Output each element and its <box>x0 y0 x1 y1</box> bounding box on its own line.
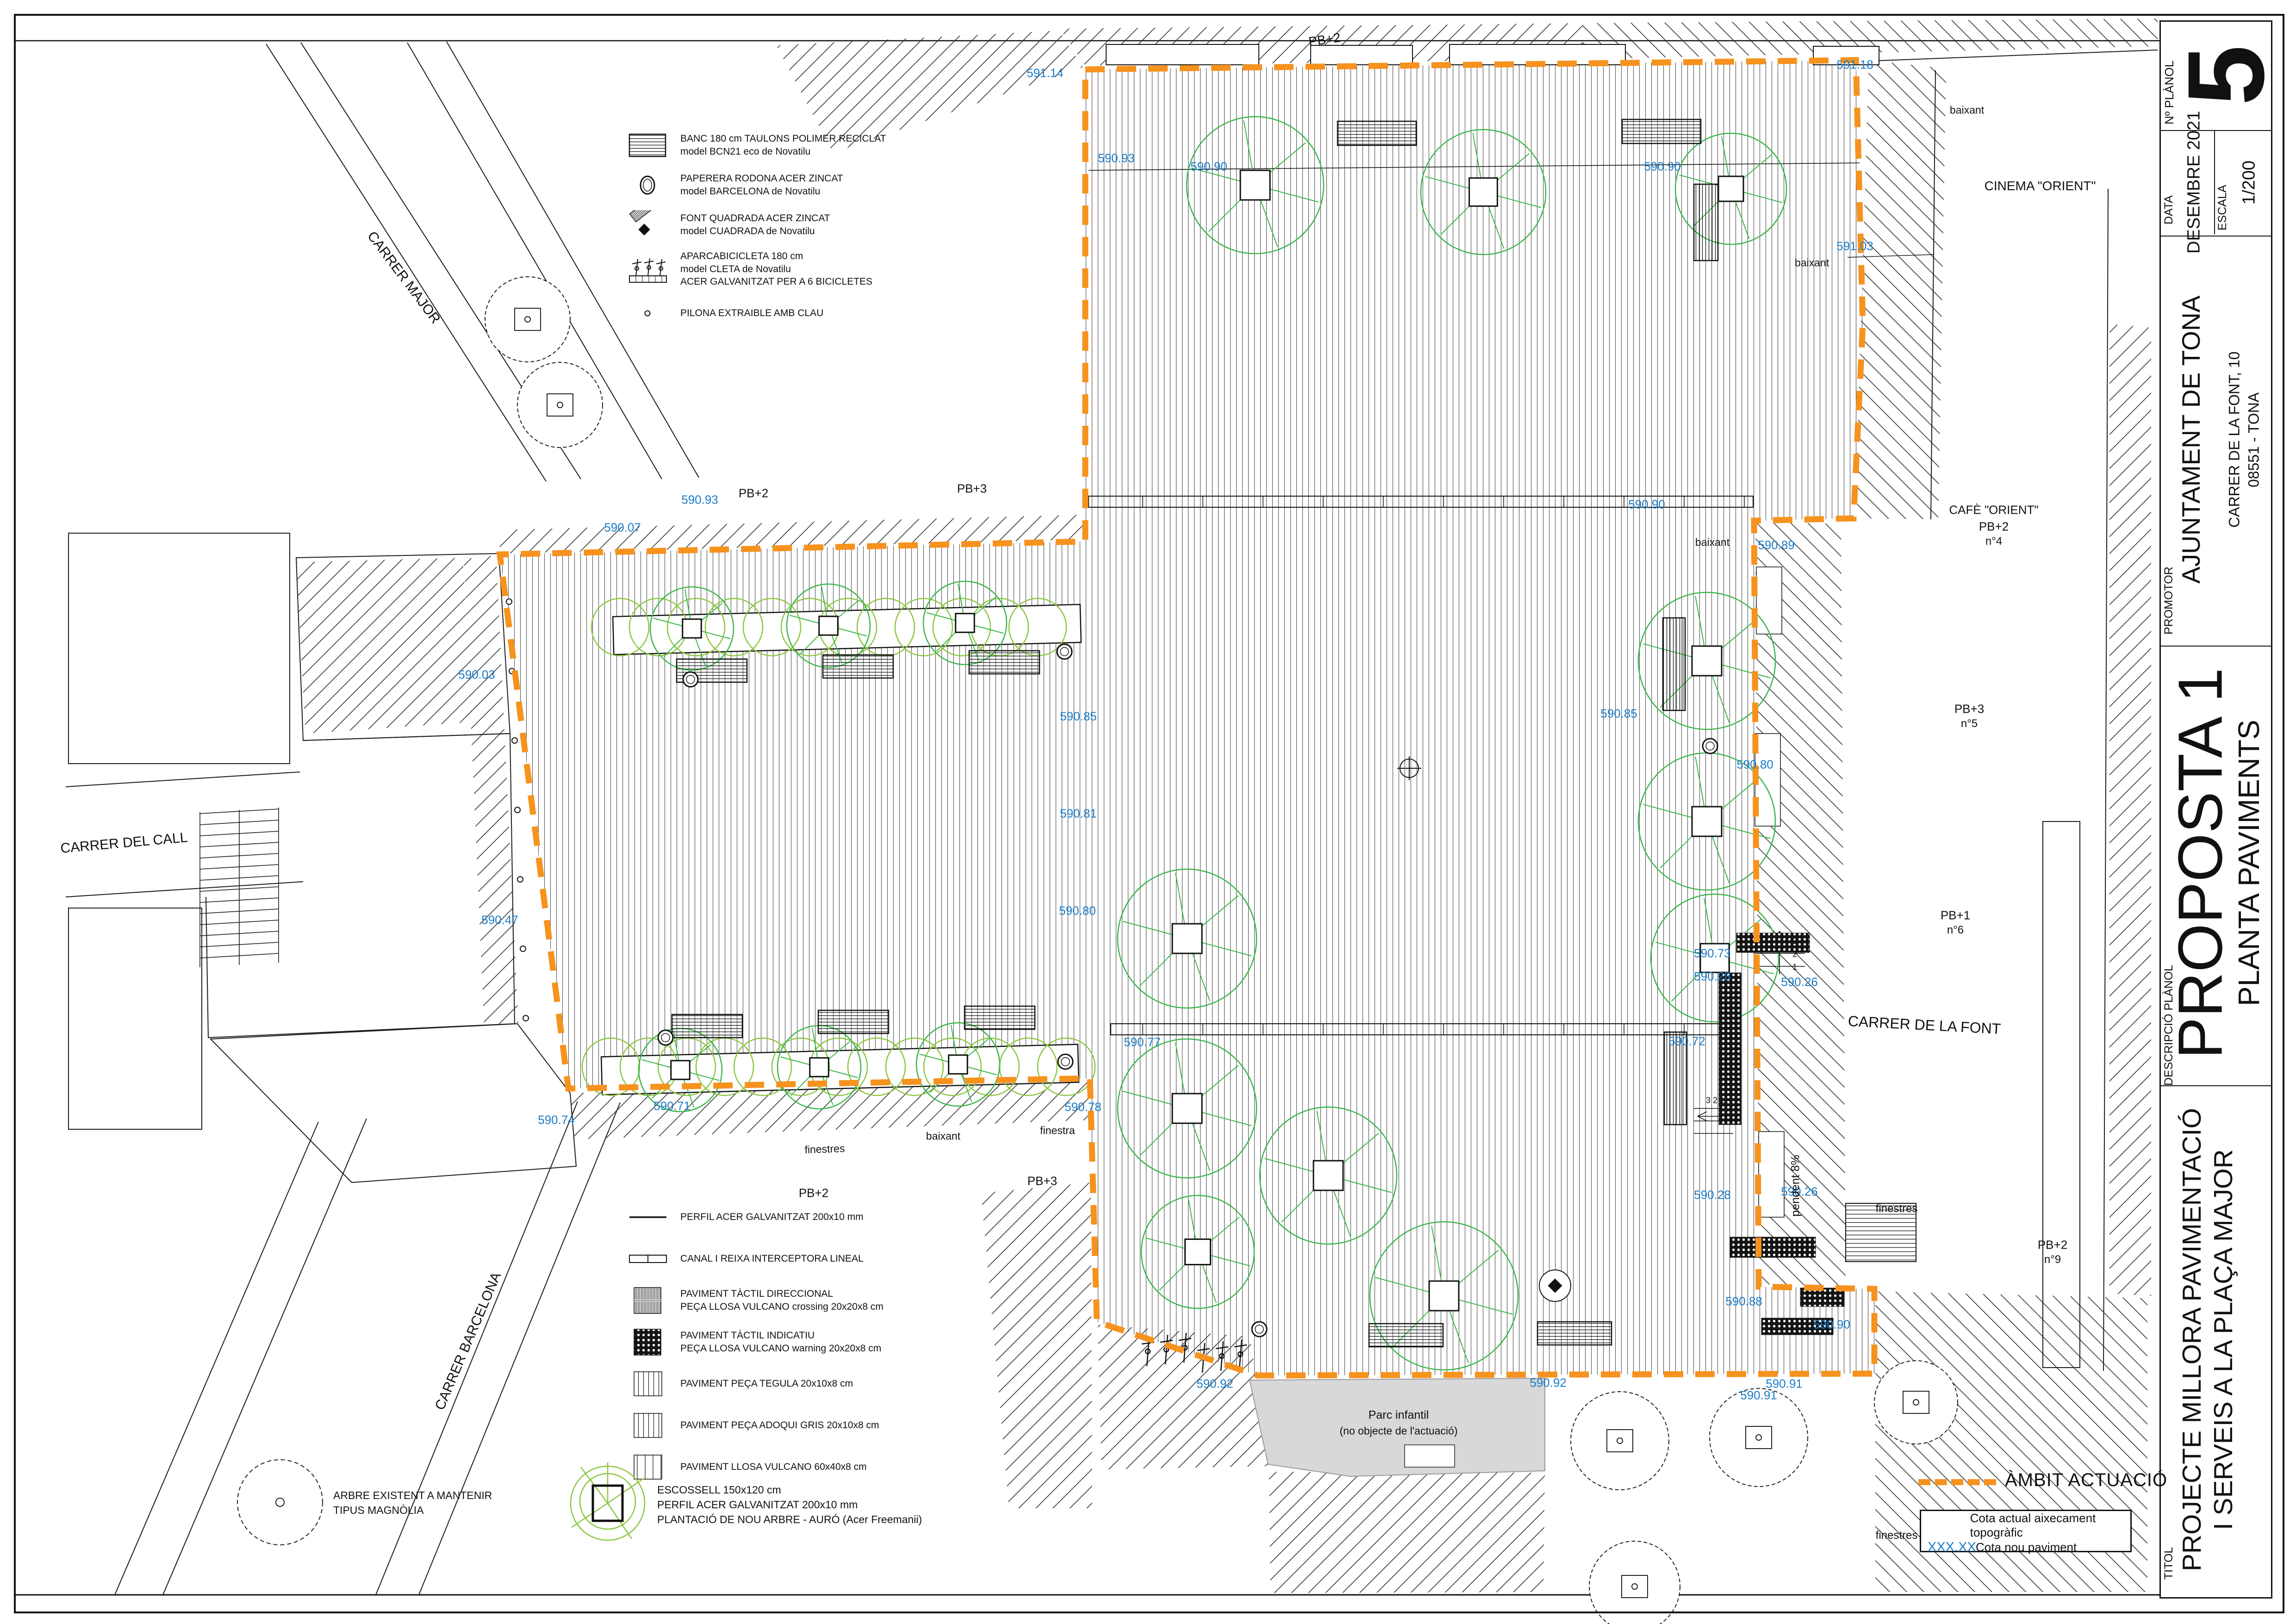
legend-arbre-existent-line1: ARBRE EXISTENT A MANTENIR <box>333 1489 492 1502</box>
fountain-icon <box>626 210 672 240</box>
adoqui-icon <box>626 1411 672 1440</box>
legend-paviments: PERFIL ACER GALVANITZAT 200x10 mmCANAL I… <box>626 1202 1042 1494</box>
legend-arbres: ARBRE EXISTENT A MANTENIR TIPUS MAGNÒLIA… <box>234 1453 1044 1560</box>
legend-row-text: BANC 180 cm TAULONS POLIMER RECICLATmode… <box>680 132 886 158</box>
cota-actual-row: Cota actual aixecament topogràfic <box>1921 1511 2130 1540</box>
legend-row-text: PAVIMENT PEÇA TEGULA 20x10x8 cm <box>680 1377 853 1390</box>
cota-actual-label: Cota actual aixecament topogràfic <box>1970 1511 2130 1540</box>
legend-row-bikerack: APARCABICICLETA 180 cmmodel CLETA de Nov… <box>626 250 1042 288</box>
bikerack-icon <box>626 255 672 284</box>
magnolia-symbol <box>234 1456 326 1549</box>
cota-legend-box: Cota actual aixecament topogràfic XXX.XX… <box>1920 1510 2132 1552</box>
proposta-title: PROPOSTA 1 <box>2174 648 2226 1078</box>
ambit-label: ÀMBIT ACTUACIÓ <box>2005 1470 2167 1491</box>
cota-nou-sample: XXX.XX <box>1921 1540 1976 1555</box>
escala-value: 1/200 <box>2234 133 2264 231</box>
legend-row-text: PAVIMENT TÀCTIL DIRECCIONALPEÇA LLOSA VU… <box>680 1288 884 1313</box>
titol-line1: PROJECTE MILLORA PAVIMENTACIÓ <box>2177 1090 2207 1590</box>
legend-row-text: PAVIMENT PEÇA ADOQUI GRIS 20x10x8 cm <box>680 1419 879 1432</box>
legend-arbre-existent-line2: TIPUS MAGNÒLIA <box>333 1504 424 1517</box>
data-escala-divider <box>2214 131 2215 234</box>
legend-row-text: PERFIL ACER GALVANITZAT 200x10 mm <box>680 1211 864 1224</box>
tind-icon <box>626 1327 672 1357</box>
promotor-address1: CARRER DE LA FONT, 10 <box>2224 241 2245 639</box>
planta-subtitle: PLANTA PAVIMENTS <box>2234 648 2263 1078</box>
sheet-border <box>14 14 2284 1613</box>
legend-escossell-line3: PLANTACIÓ DE NOU ARBRE - AURÓ (Acer Free… <box>657 1513 922 1526</box>
ambit-dash-swatch <box>1918 1479 1996 1485</box>
plan-number: 5 <box>2186 25 2265 125</box>
cota-nou-label: Cota nou paviment <box>1976 1540 2077 1555</box>
plan-sheet: { "title_block": { "plan_number_label": … <box>0 0 2296 1624</box>
legend-row-adoqui: PAVIMENT PEÇA ADOQUI GRIS 20x10x8 cm <box>626 1411 1042 1440</box>
line-icon <box>626 1202 672 1232</box>
promotor-name: AJUNTAMENT DE TONA <box>2174 241 2208 639</box>
legend-escossell-line2: PERFIL ACER GALVANITZAT 200x10 mm <box>657 1499 858 1511</box>
tdir-icon <box>626 1286 672 1315</box>
cota-nou-row: XXX.XX Cota nou paviment <box>1921 1540 2130 1555</box>
legend-row-text: PILONA EXTRAIBLE AMB CLAU <box>680 307 823 320</box>
legend-row-bin: PAPERERA RODONA ACER ZINCATmodel BARCELO… <box>626 170 1042 200</box>
legend-row-tegula: PAVIMENT PEÇA TEGULA 20x10x8 cm <box>626 1369 1042 1399</box>
legend-row-text: PAPERERA RODONA ACER ZINCATmodel BARCELO… <box>680 172 843 198</box>
legend-row-tdir: PAVIMENT TÀCTIL DIRECCIONALPEÇA LLOSA VU… <box>626 1286 1042 1315</box>
data-label: DATA <box>2162 189 2176 231</box>
escossell-symbol <box>558 1453 657 1553</box>
escala-label: ESCALA <box>2216 184 2229 231</box>
legend-row-text: PAVIMENT TÀCTIL INDICATIUPEÇA LLOSA VULC… <box>680 1329 881 1355</box>
titol-label: TITOL <box>2162 1537 2176 1590</box>
legend-row-text: APARCABICICLETA 180 cmmodel CLETA de Nov… <box>680 250 872 288</box>
legend-escossell-line1: ESCOSSELL 150x120 cm <box>657 1484 781 1496</box>
legend-row-bench: BANC 180 cm TAULONS POLIMER RECICLATmode… <box>626 131 1042 160</box>
data-value: DESEMBRE 2021 <box>2178 133 2210 231</box>
bench-icon <box>626 131 672 160</box>
tegula-icon <box>626 1369 672 1399</box>
promotor-label: PROMOTOR <box>2162 559 2176 642</box>
legend-row-tind: PAVIMENT TÀCTIL INDICATIUPEÇA LLOSA VULC… <box>626 1327 1042 1357</box>
legend-row-bollard: PILONA EXTRAIBLE AMB CLAU <box>626 299 1042 328</box>
legend-row-line: PERFIL ACER GALVANITZAT 200x10 mm <box>626 1202 1042 1232</box>
titol-line2: I SERVEIS A LA PLAÇA MAJOR <box>2209 1090 2238 1590</box>
canal-icon <box>626 1244 672 1274</box>
legend-row-text: CANAL I REIXA INTERCEPTORA LINEAL <box>680 1252 864 1265</box>
legend-row-fountain: FONT QUADRADA ACER ZINCATmodel CUADRADA … <box>626 210 1042 240</box>
promotor-address2: 08551 - TONA <box>2245 241 2263 639</box>
legend-row-canal: CANAL I REIXA INTERCEPTORA LINEAL <box>626 1244 1042 1274</box>
bollard-icon <box>626 299 672 328</box>
bin-icon <box>626 170 672 200</box>
legend-row-text: FONT QUADRADA ACER ZINCATmodel CUADRADA … <box>680 212 830 237</box>
legend-mobiliari: BANC 180 cm TAULONS POLIMER RECICLATmode… <box>626 131 1042 338</box>
